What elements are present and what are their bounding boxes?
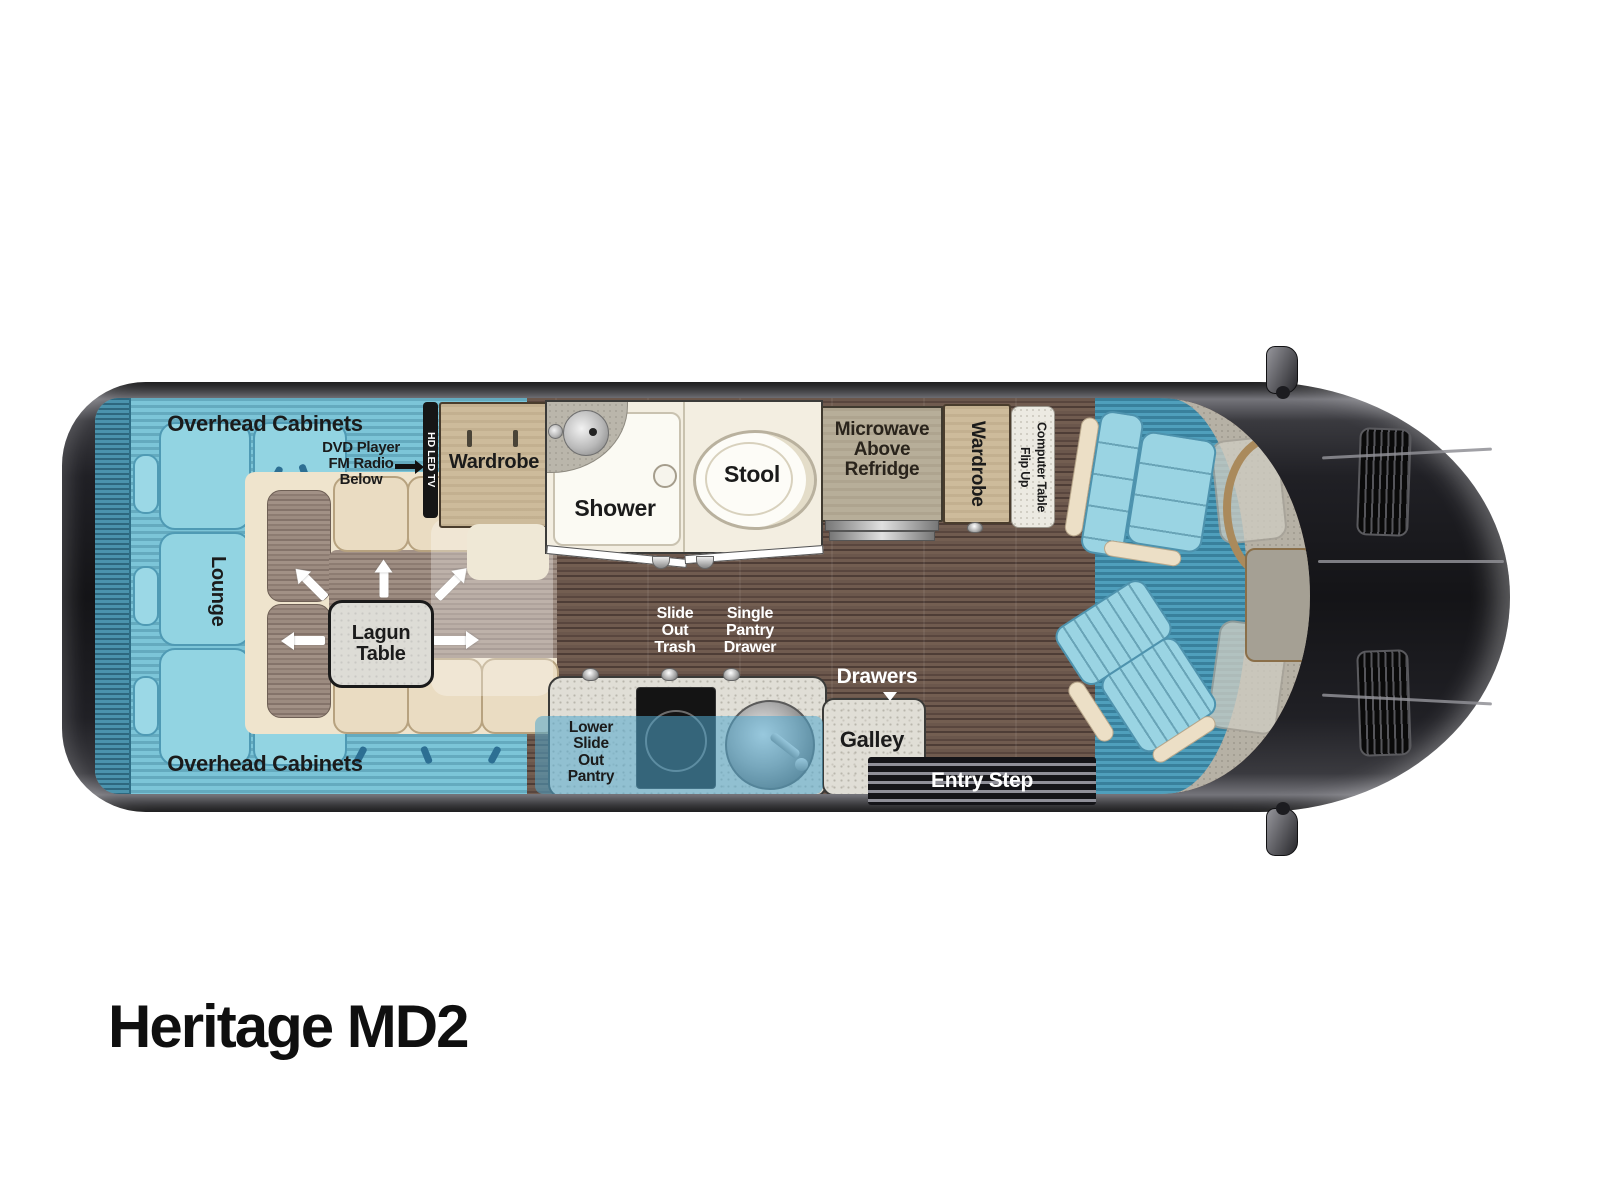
lagun-arrow-up-icon [380,572,389,598]
lounge-seat-cushion [159,422,251,530]
dinette-bench-gray [267,604,331,718]
fridge-vent [829,531,935,541]
side-mirror-bottom-icon [1266,808,1298,856]
counter-knob-icon [661,668,678,681]
slide-out-trash-label: Slide Out Trash [635,606,715,656]
wardrobe-knob-icon [967,522,983,533]
counter-knob-icon [582,668,599,681]
single-pantry-drawer-label: Single Pantry Drawer [707,606,793,656]
lagun-table-label: Lagun Table [352,623,411,665]
door-foot-icon [696,556,714,569]
microwave-fridge: Microwave Above Refridge [821,406,943,522]
lounge-seat-cushion [159,648,251,766]
rear-wardrobe-label: Wardrobe [441,452,547,473]
lounge-label: Lounge [207,556,228,626]
counter-knob-icon [723,668,740,681]
shower-label: Shower [559,496,671,520]
lagun-arrow-left-icon [293,636,325,645]
van-interior: Lagun Table Overhead Cabinets Overhead C… [95,398,1310,794]
side-mirror-bottom-foot [1276,802,1290,815]
lagun-table: Lagun Table [328,600,434,688]
rear-wardrobe: Wardrobe [439,402,549,528]
cabinet-handle [513,430,518,447]
dinette-bench-gray [267,490,331,602]
entry-step: Entry Step [868,757,1096,805]
hood-vent-top-icon [1356,427,1412,537]
door-foot-icon [652,556,670,569]
overhead-cabinets-bottom-label: Overhead Cabinets [165,752,365,775]
galley-label: Galley [822,728,922,751]
lounge-seat-cushion [159,532,251,646]
lagun-arrow-right-icon [433,636,467,645]
stool-label: Stool [705,462,799,486]
side-mirror-top-foot [1276,386,1290,399]
tv-cabinet: HD LED TV [423,402,438,518]
front-wardrobe: Wardrobe [943,404,1011,524]
bathroom: Shower Stool [545,400,823,554]
cabinet-handle [467,430,472,447]
overhead-cabinets-top-label: Overhead Cabinets [165,412,365,435]
window-pill [133,566,159,626]
computer-table: Flip Up Computer Table [1011,406,1055,528]
hood-vent-bottom-icon [1356,649,1412,757]
dvd-player-label: DVD Player FM Radio Below [317,440,405,487]
rear-doors [95,398,131,794]
faucet-handle-icon [548,424,563,439]
fridge-vent [825,520,939,531]
seat-base [467,524,549,580]
shower-drain-icon [653,464,677,488]
dvd-arrow-icon [395,464,415,469]
hood-crease-line [1318,560,1504,563]
floorplan-page: Lagun Table Overhead Cabinets Overhead C… [0,0,1600,1200]
hd-led-tv-label: HD LED TV [425,432,436,487]
front-wardrobe-label: Wardrobe [967,421,987,507]
sink-bowl-icon [563,410,609,456]
drawers-arrow-icon [883,692,897,701]
drawers-label: Drawers [817,666,937,688]
faucet-spout-icon [589,428,597,436]
microwave-label: Microwave Above Refridge [823,420,941,480]
lower-slide-out-pantry-label: Lower Slide Out Pantry [550,720,632,785]
entry-step-label: Entry Step [931,770,1033,792]
bath-divider [683,402,685,552]
computer-table-label: Flip Up Computer Table [1017,422,1050,512]
window-pill [133,454,159,514]
floorplan-title: Heritage MD2 [108,992,467,1061]
window-pill [133,676,159,736]
